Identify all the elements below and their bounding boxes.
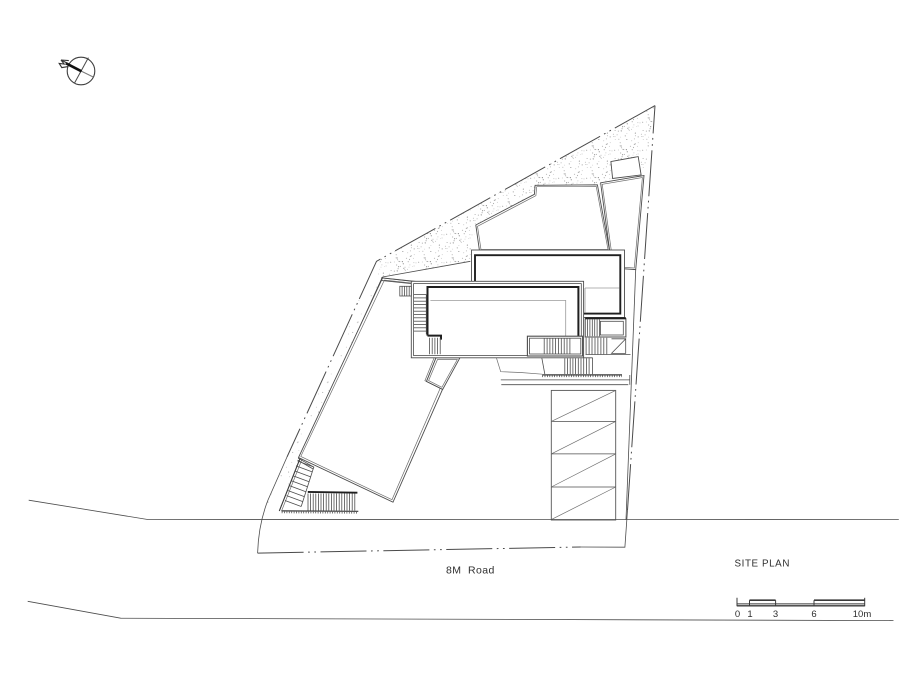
svg-text:SITE PLAN: SITE PLAN	[735, 559, 791, 570]
svg-text:8M Road: 8M Road	[446, 565, 495, 577]
svg-text:0: 0	[735, 609, 740, 620]
svg-text:6: 6	[811, 609, 816, 620]
svg-text:10m: 10m	[853, 609, 872, 620]
svg-text:3: 3	[773, 609, 778, 620]
svg-text:1: 1	[747, 609, 752, 620]
